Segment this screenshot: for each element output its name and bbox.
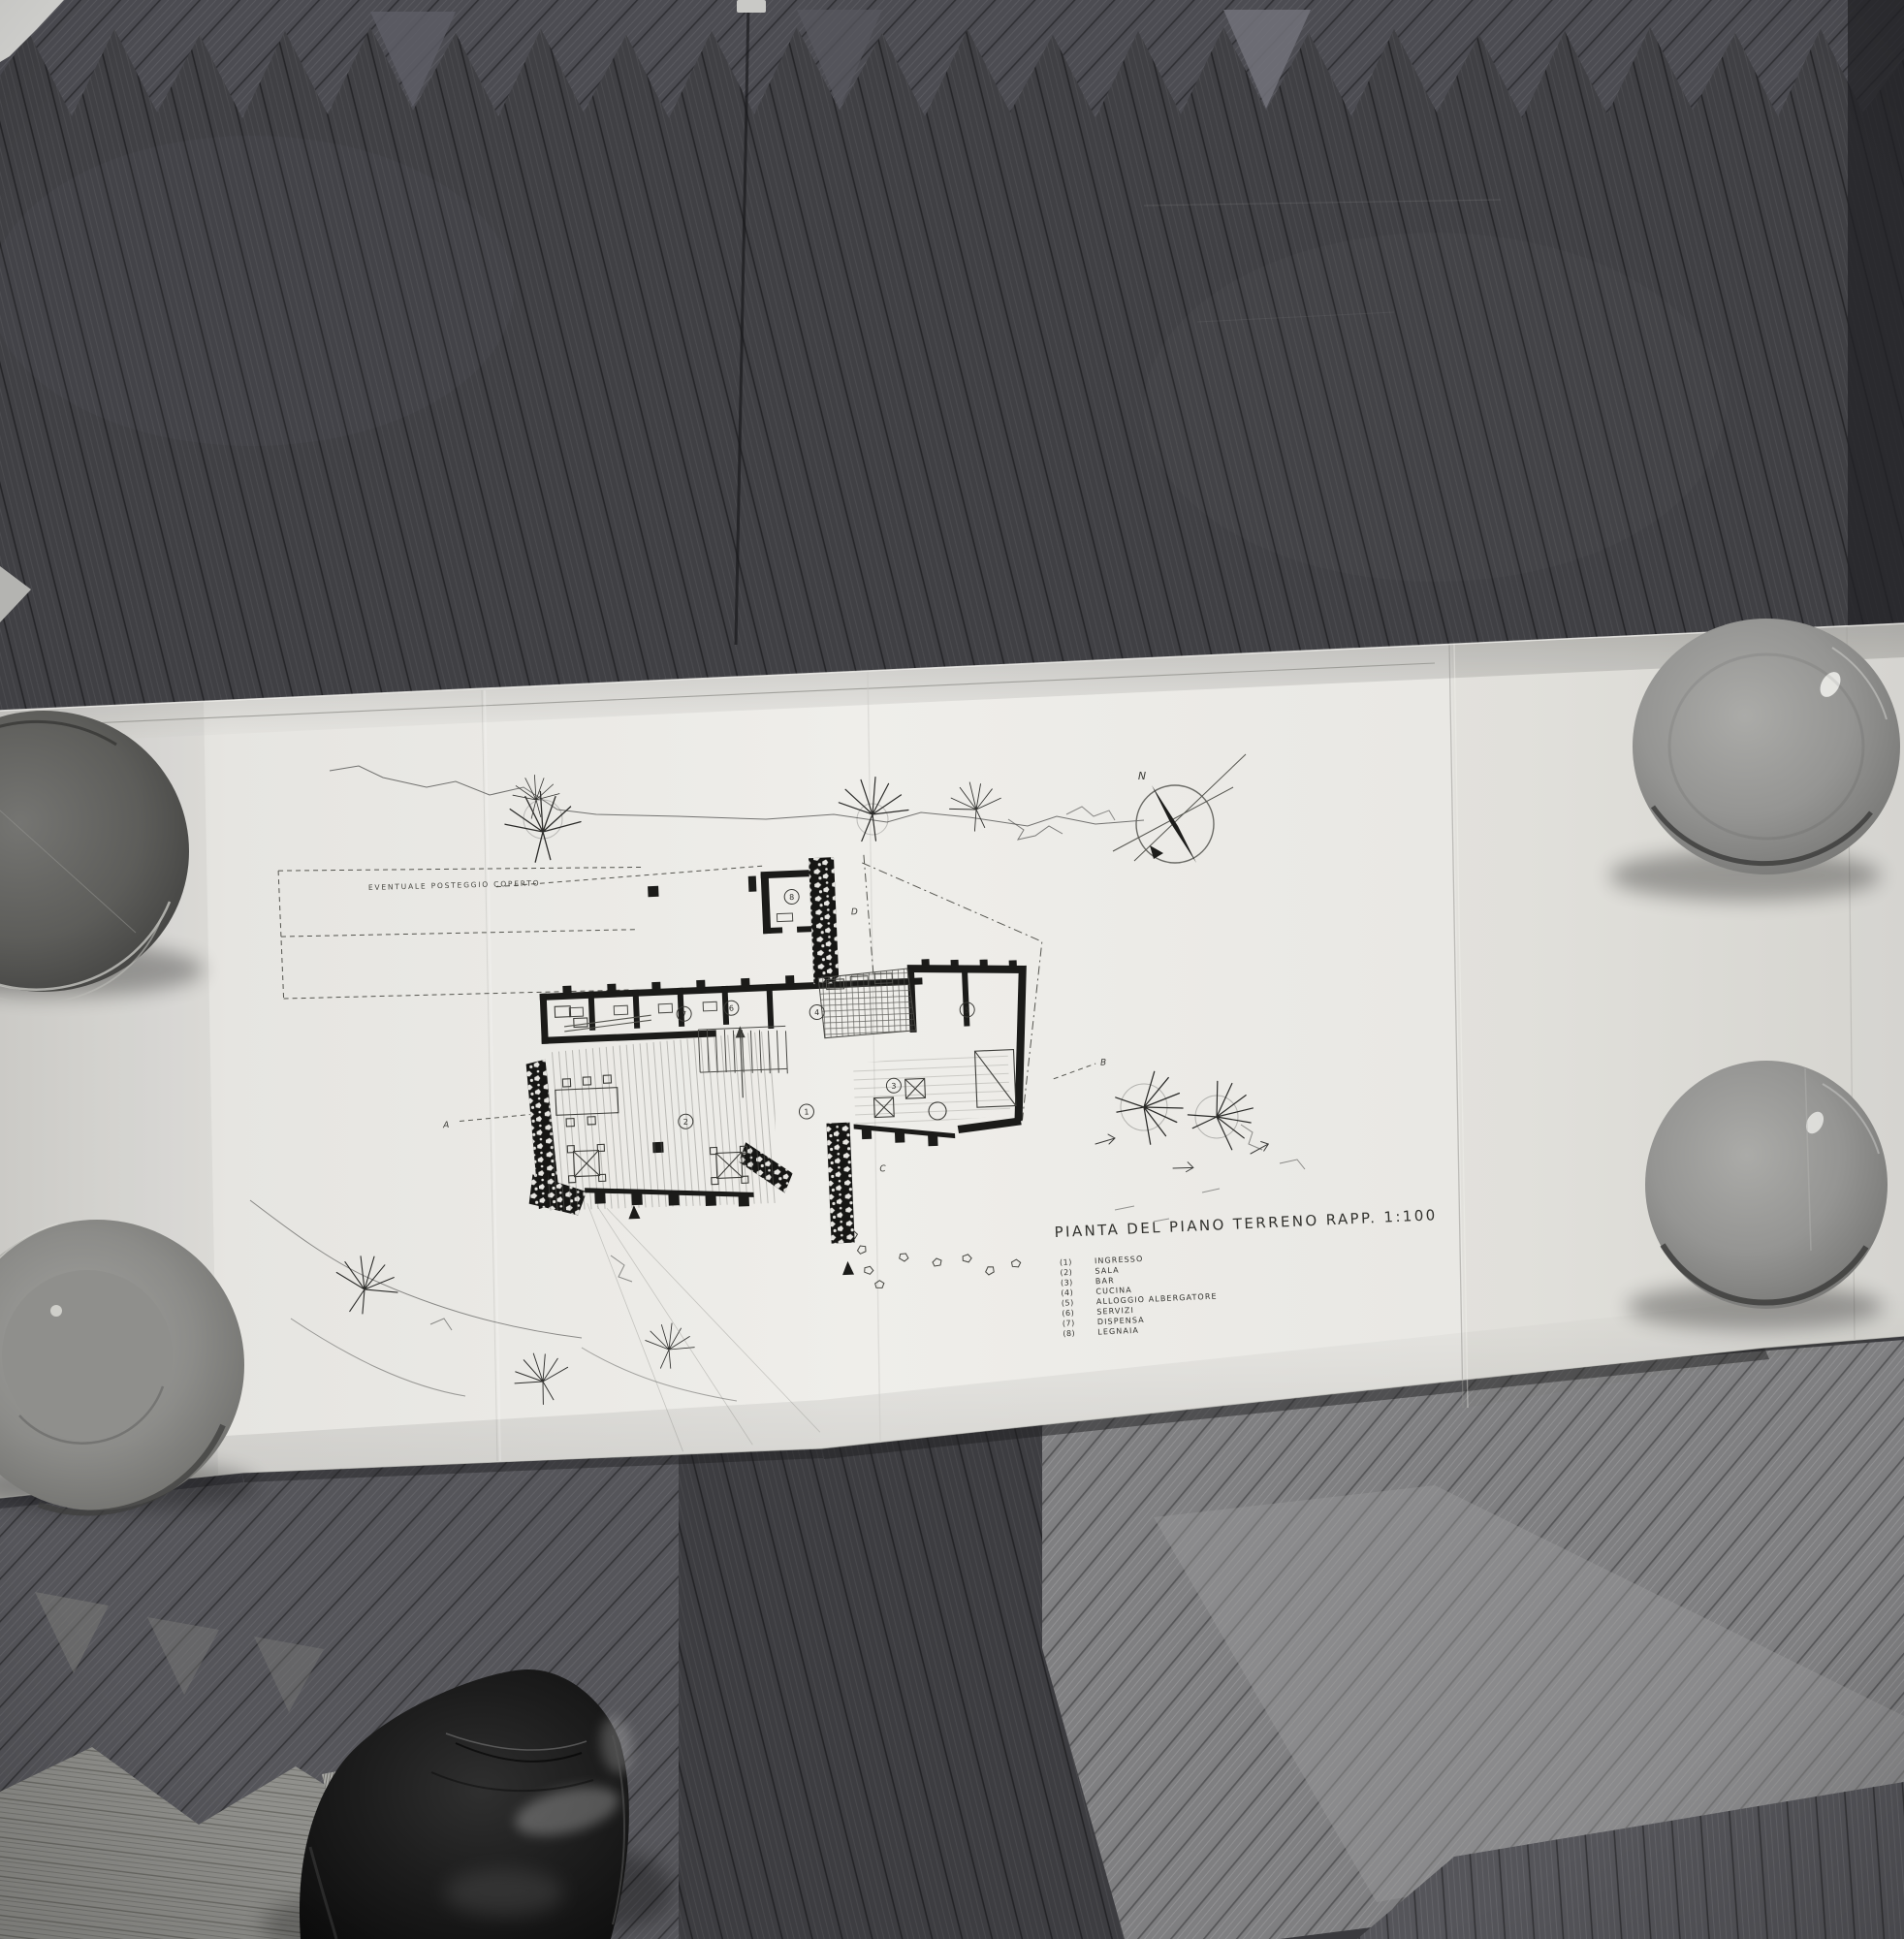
photo-of-floor-plan-on-parquet: 1 2 3 4 5 6 7 8 A B C D N — [0, 0, 1904, 1939]
vignette — [0, 0, 1904, 1939]
photo-scene: 1 2 3 4 5 6 7 8 A B C D N — [0, 0, 1904, 1939]
